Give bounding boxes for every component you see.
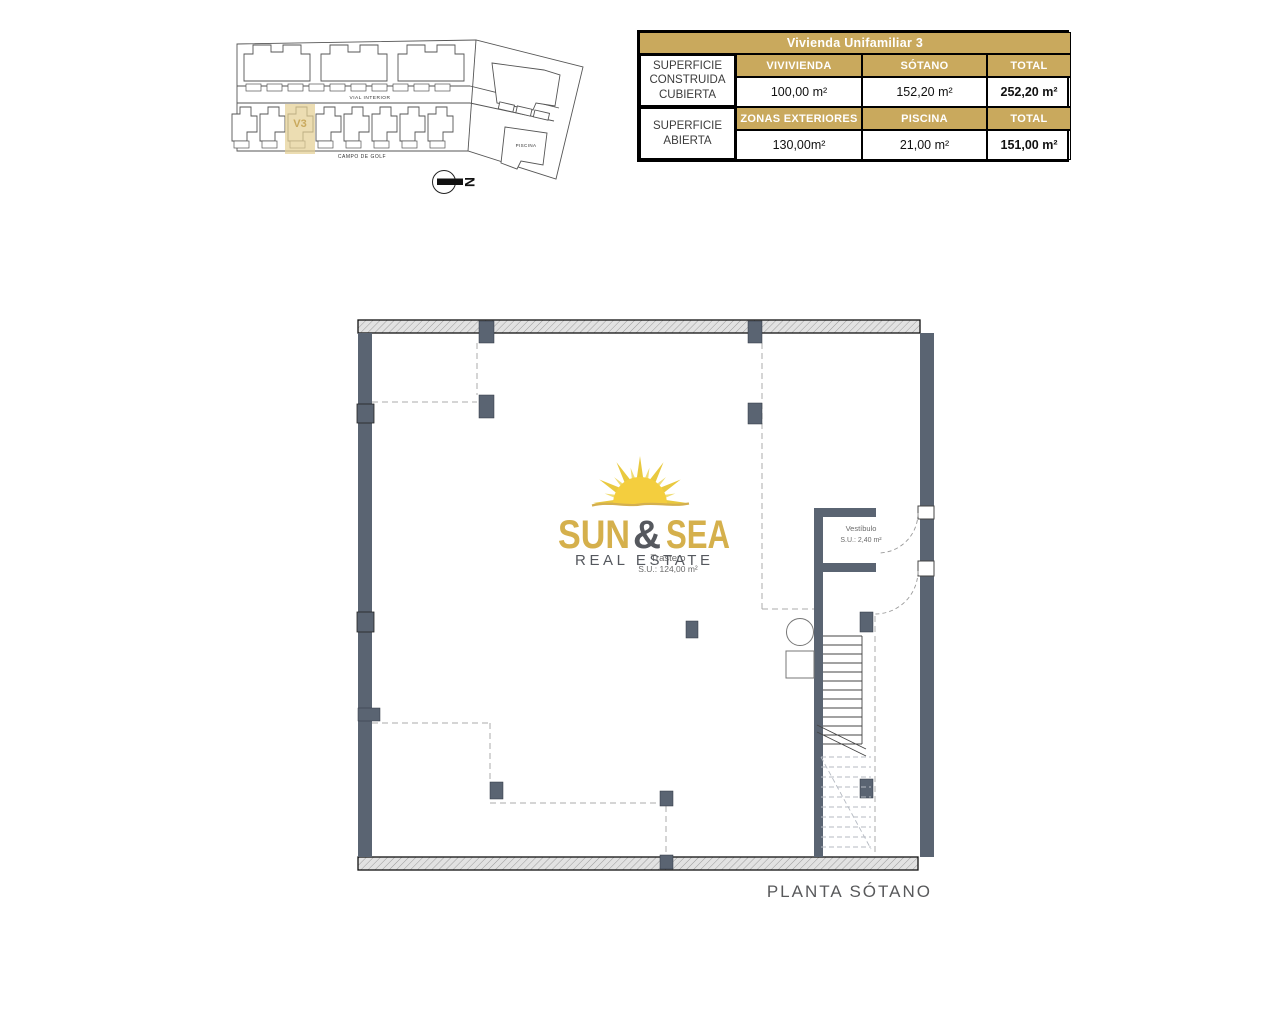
area-summary-table: Vivienda Unifamiliar 3 SUPERFICIE CONSTR… xyxy=(637,30,1069,162)
value-vivienda: 100,00 m² xyxy=(736,77,862,107)
columns xyxy=(358,321,873,869)
row-label-superficie-abierta: SUPERFICIE ABIERTA xyxy=(639,107,736,160)
logo-tagline: REAL ESTATE xyxy=(575,552,715,569)
wall-top xyxy=(358,320,920,333)
dashed-outline xyxy=(372,343,875,855)
floor-plan: Trastero S.U.: 124,00 m² Vestíbulo S.U.:… xyxy=(357,320,934,901)
bottom-row-houses xyxy=(232,107,453,141)
fixtures xyxy=(786,619,814,679)
value-zonas-exteriores: 130,00m² xyxy=(736,130,862,160)
value-total-1: 252,20 m² xyxy=(987,77,1071,107)
appliance-square xyxy=(786,651,814,678)
north-letter: N xyxy=(462,177,478,187)
parking-row-top xyxy=(246,84,450,91)
logo-word-sea: SEA xyxy=(666,513,730,557)
value-piscina: 21,00 m² xyxy=(862,130,987,160)
parking-row-bottom xyxy=(234,141,445,148)
site-right-block xyxy=(492,63,560,169)
row-label-superficie-construida: SUPERFICIE CONSTRUIDA CUBIERTA xyxy=(639,54,736,107)
logo-word-sun: SUN xyxy=(558,513,630,557)
plan-caption: PLANTA SÓTANO xyxy=(767,882,932,901)
col-header-sotano: SÓTANO xyxy=(862,54,987,77)
col-header-vivienda: VIVIVIENDA xyxy=(736,54,862,77)
logo-ampersand: & xyxy=(633,513,661,557)
col-header-total-1: TOTAL xyxy=(987,54,1071,77)
door-swings xyxy=(875,513,918,614)
page: V3 VIAL INTERIOR CAMPO DE GOLF PISCINA N xyxy=(0,0,1280,1024)
col-header-piscina: PISCINA xyxy=(862,107,987,130)
pool-label: PISCINA xyxy=(516,143,537,148)
value-sotano: 152,20 m² xyxy=(862,77,987,107)
north-arrow-icon: N xyxy=(433,171,479,194)
wall-bottom xyxy=(358,857,918,870)
room-vestibulo-area: S.U.: 2,40 m² xyxy=(840,537,882,544)
highlighted-unit-label: V3 xyxy=(293,118,306,130)
top-row-buildings xyxy=(244,45,464,81)
boiler-circle xyxy=(787,619,814,646)
sun-horizon-wave xyxy=(592,504,689,506)
col-header-total-2: TOTAL xyxy=(987,107,1071,130)
col-header-zonas-exteriores: ZONAS EXTERIORES xyxy=(736,107,862,130)
street-label: VIAL INTERIOR xyxy=(350,95,391,101)
wall-right xyxy=(920,333,934,857)
room-vestibulo-name: Vestíbulo xyxy=(846,524,877,533)
site-block-divider xyxy=(468,40,476,151)
golf-label: CAMPO DE GOLF xyxy=(338,154,386,160)
table-title: Vivienda Unifamiliar 3 xyxy=(639,32,1071,54)
value-total-2: 151,00 m² xyxy=(987,130,1071,160)
stairs xyxy=(817,636,871,849)
site-plan: V3 VIAL INTERIOR CAMPO DE GOLF PISCINA N xyxy=(232,40,583,194)
interior-walls xyxy=(814,508,876,857)
agency-logo: SUN & SEA REAL ESTATE xyxy=(558,456,730,569)
